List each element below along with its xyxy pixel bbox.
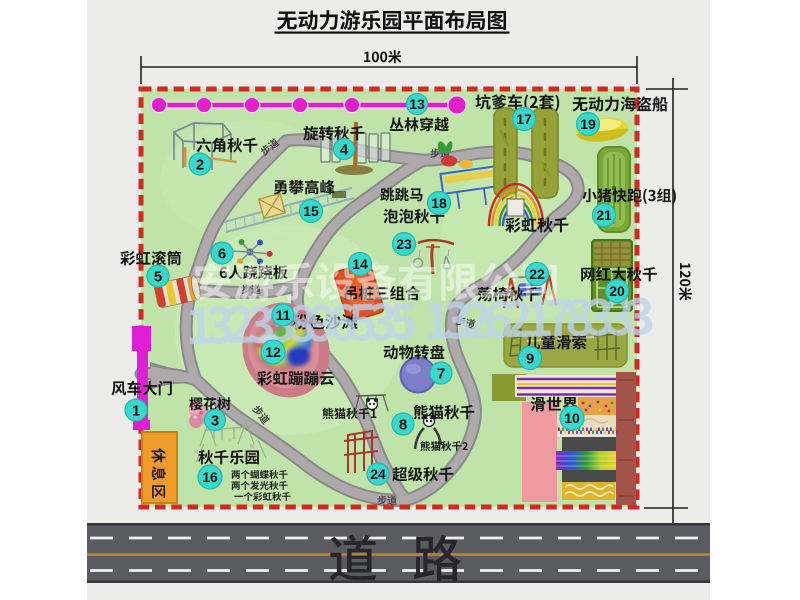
svg-text:1: 1 xyxy=(132,402,140,419)
svg-text:14: 14 xyxy=(352,256,368,272)
svg-text:18: 18 xyxy=(431,195,447,211)
svg-text:19: 19 xyxy=(580,116,596,132)
svg-text:2: 2 xyxy=(196,156,204,173)
svg-text:22: 22 xyxy=(529,266,545,282)
svg-text:9: 9 xyxy=(526,350,534,367)
svg-text:4: 4 xyxy=(340,141,349,158)
svg-text:11: 11 xyxy=(276,307,291,323)
svg-text:6: 6 xyxy=(218,245,226,262)
svg-text:8: 8 xyxy=(399,416,407,433)
svg-text:20: 20 xyxy=(609,283,625,299)
svg-text:15: 15 xyxy=(303,203,319,219)
svg-text:24: 24 xyxy=(370,466,386,482)
svg-text:10: 10 xyxy=(564,410,580,426)
svg-text:5: 5 xyxy=(154,268,162,285)
svg-text:12: 12 xyxy=(265,344,281,360)
svg-text:23: 23 xyxy=(396,236,412,252)
svg-text:13: 13 xyxy=(409,96,425,112)
svg-text:21: 21 xyxy=(596,207,612,223)
svg-text:16: 16 xyxy=(202,469,218,485)
svg-text:17: 17 xyxy=(516,111,532,127)
svg-text:3: 3 xyxy=(211,412,219,429)
svg-text:7: 7 xyxy=(437,365,445,382)
